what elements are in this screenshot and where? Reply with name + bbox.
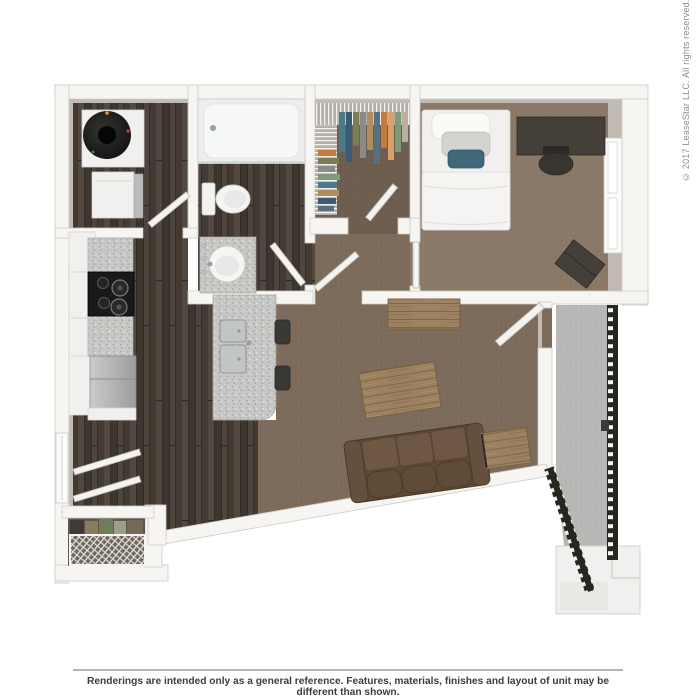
floor-plan-rendering (0, 0, 697, 697)
disclaimer-text: Renderings are intended only as a genera… (73, 676, 623, 697)
island-sink (220, 320, 246, 342)
washer-dryer (92, 172, 134, 218)
floorplan-page: © 2017 LeaseStar LLC. All rights reserve… (0, 0, 697, 697)
laundry-doorway (143, 228, 183, 238)
island-faucet (246, 340, 251, 345)
sink-faucet (208, 262, 213, 267)
hall-doorway (313, 291, 362, 304)
coat-closet-bottom-wall (55, 565, 168, 581)
bath-doorway (305, 243, 315, 285)
end-table (481, 427, 532, 469)
copyright-watermark: © 2017 LeaseStar LLC. All rights reserve… (681, 12, 691, 182)
exterior-top-wall (55, 85, 648, 99)
closet-bottom-wall (310, 218, 348, 234)
closet-bedroom-wall (410, 85, 420, 218)
laundry-bath-wall (188, 85, 198, 230)
desk-chair (539, 153, 573, 175)
walkway-floor (556, 305, 612, 584)
coat-closet (62, 506, 154, 566)
railing-bracket (601, 420, 609, 431)
laundry-bottom-wall (55, 228, 143, 238)
footer-divider (73, 669, 623, 671)
bar-stool (275, 366, 290, 390)
console-table (388, 299, 460, 329)
bedroom-door (413, 242, 419, 288)
disclaimer-footer: Renderings are intended only as a genera… (73, 669, 623, 697)
toilet-tank (202, 183, 215, 215)
hall-floor (315, 234, 410, 294)
railing-right (607, 305, 618, 560)
counter-granite (88, 238, 133, 272)
tub-faucet (210, 125, 216, 131)
bed-duvet (422, 172, 510, 230)
living-right-wall (538, 348, 552, 472)
accent-pillow-teal (448, 150, 484, 168)
exterior-right-wall (622, 99, 648, 305)
stair-landing (556, 546, 640, 614)
shower-glass (198, 161, 305, 164)
closet-doorway (348, 218, 398, 234)
bar-stool (275, 320, 290, 344)
refrigerator (90, 356, 136, 410)
room-entry (62, 506, 154, 566)
